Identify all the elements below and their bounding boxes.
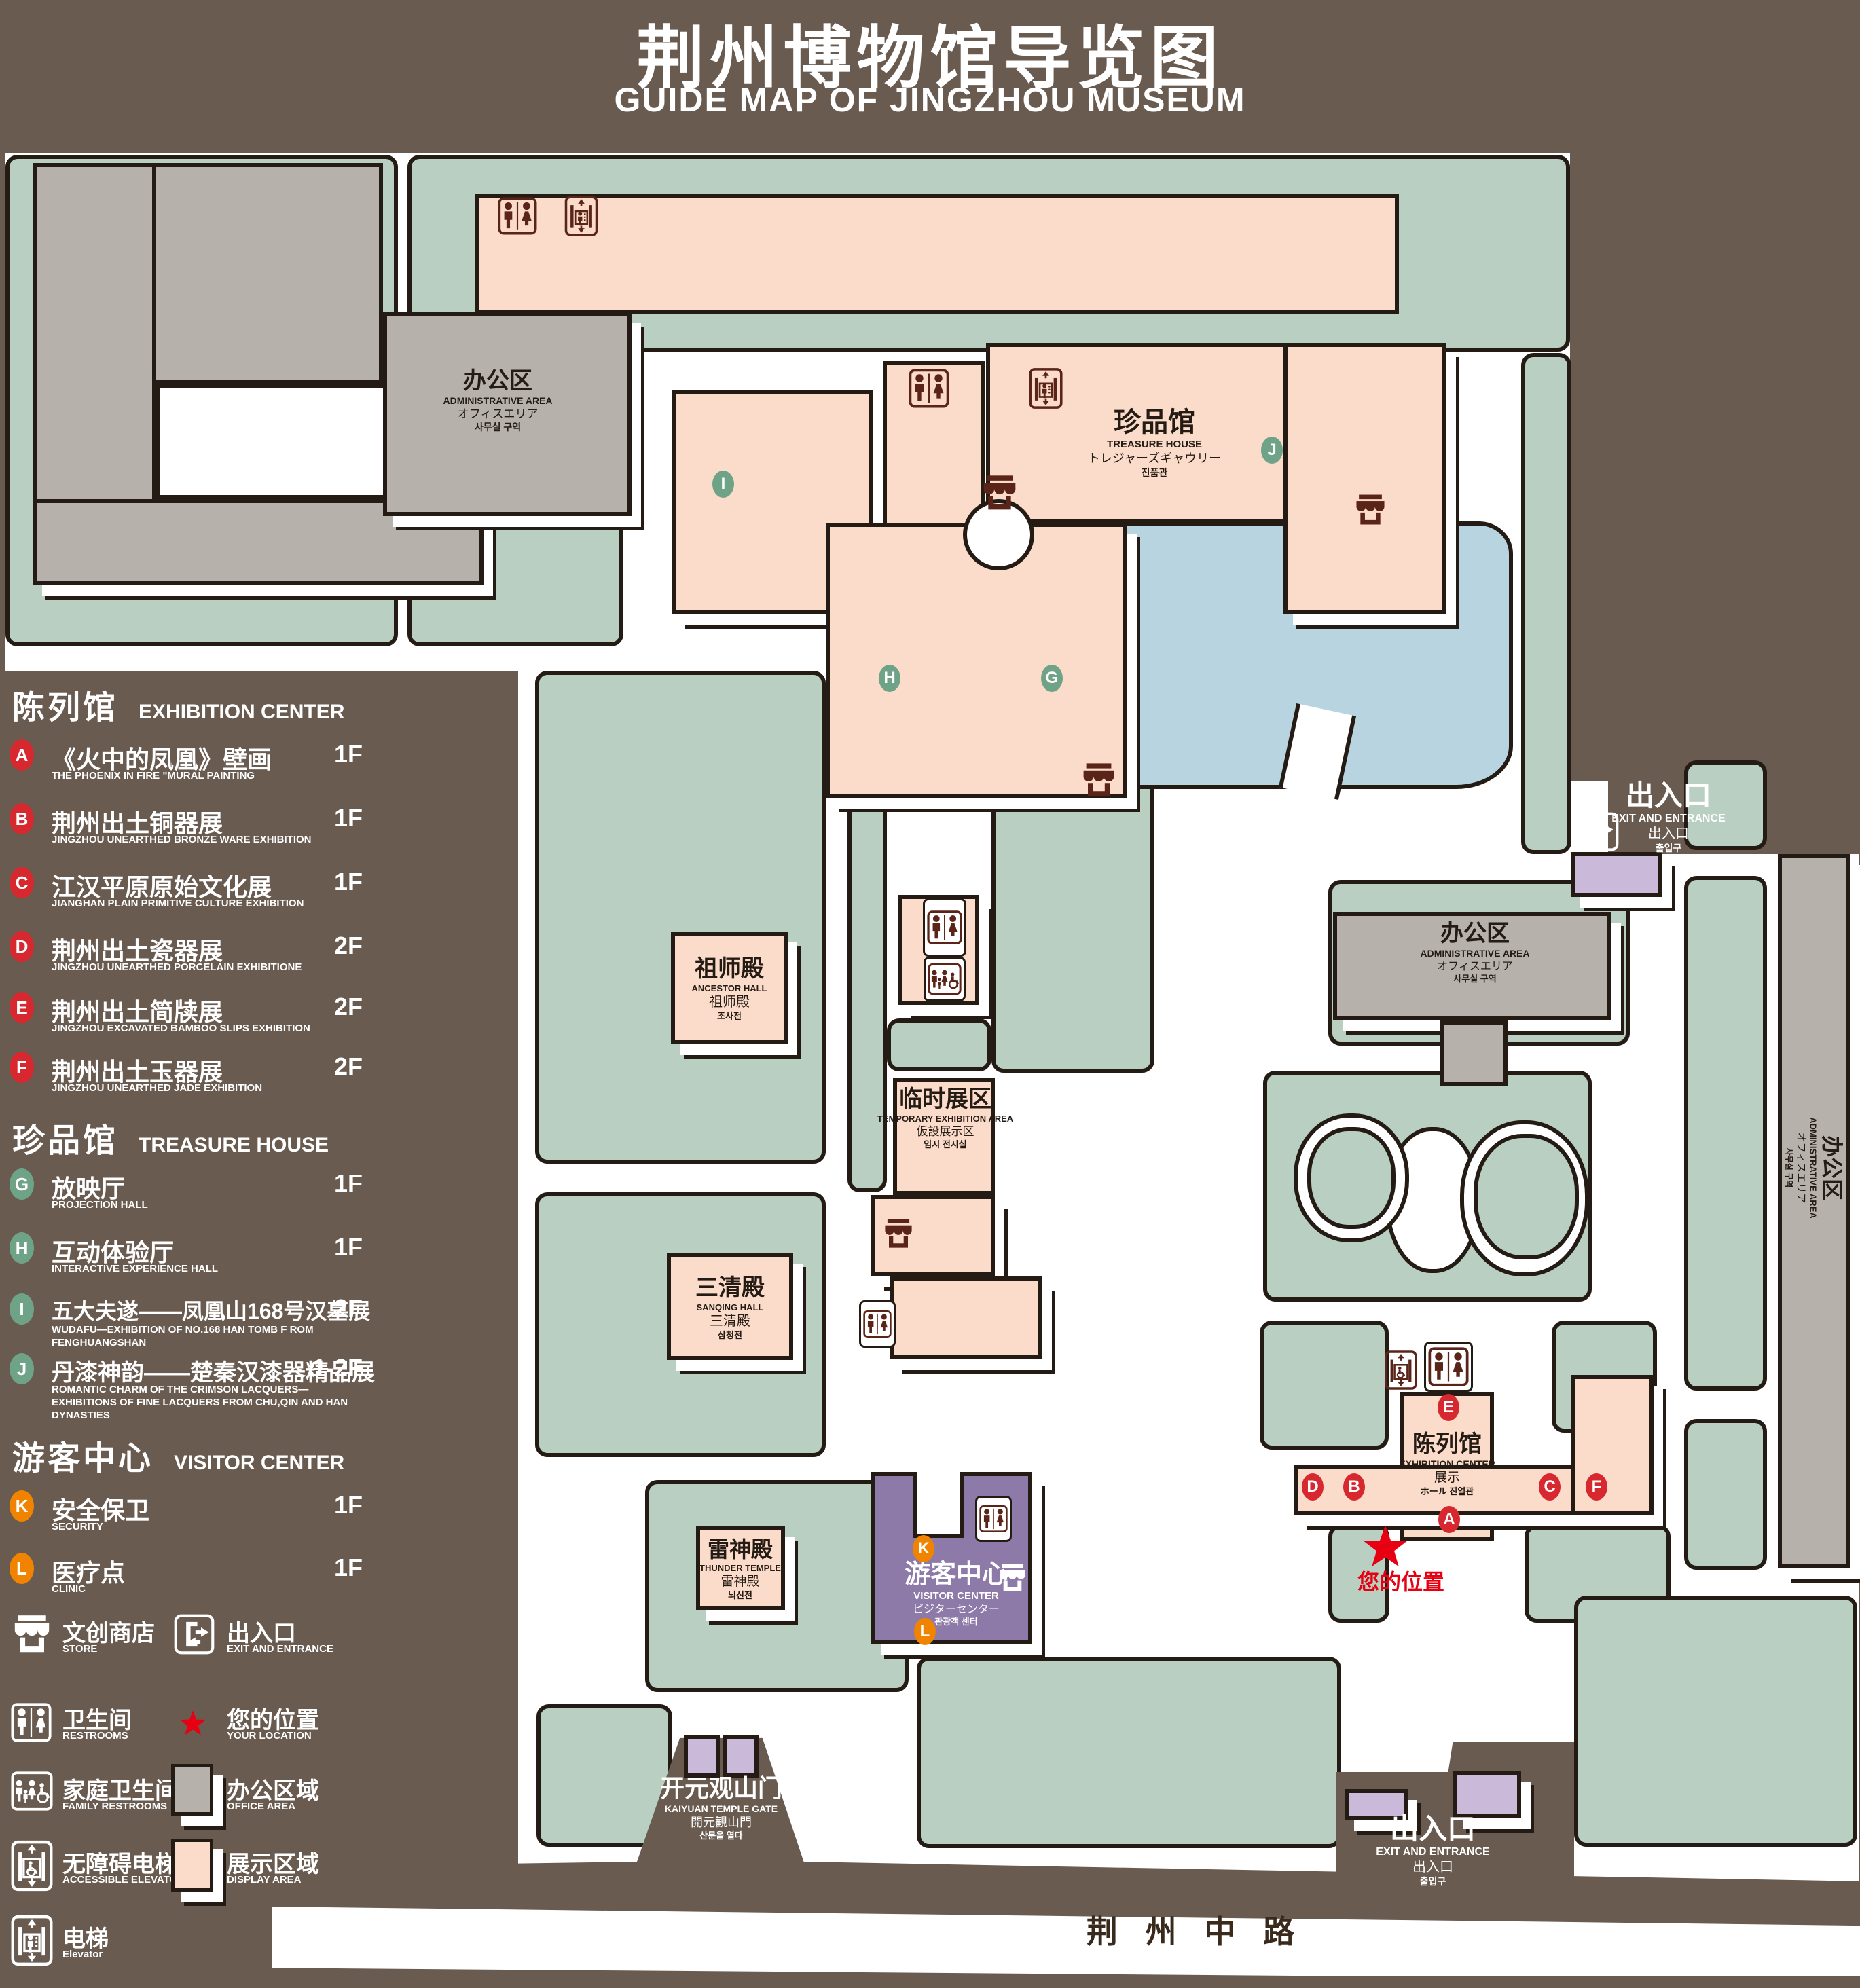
legend-item-name-en: JINGZHOU UNEARTHED JADE EXHIBITION — [52, 1082, 371, 1095]
legend-badge-b: B — [10, 803, 34, 834]
label-line: TEMPORARY EXHIBITION AREA — [877, 1114, 1013, 1124]
map-badge-g: G — [1041, 665, 1063, 692]
legend-badge-e: E — [10, 992, 34, 1023]
family-restroom-icon — [924, 957, 966, 1001]
label-line: 雷神殿 — [699, 1538, 781, 1562]
legend-item-floor: 1F — [334, 1491, 363, 1520]
legend-section-title-zh: 游客中心 — [12, 1441, 153, 1477]
temporary-exhibition-label: 临时展区TEMPORARY EXHIBITION AREA仮設展示区임시 전시실 — [877, 1085, 1013, 1152]
legend-badge-a: A — [10, 739, 34, 771]
legend-section-title-en: TREASURE HOUSE — [139, 1134, 329, 1156]
legend-item-name-en: SECURITY — [52, 1521, 371, 1534]
label-line: 展示 — [1399, 1471, 1495, 1486]
label-line: 사무실 구역 — [1785, 1117, 1793, 1219]
legend-item-name-en: PROJECTION HALL — [52, 1199, 371, 1212]
label-line: 산문을 열다 — [660, 1831, 782, 1841]
label-line: 開元観山門 — [660, 1816, 782, 1829]
legend-section-header: 陈列馆EXHIBITION CENTER — [12, 680, 344, 728]
legend-item-floor: 1F — [334, 740, 363, 769]
legend-section-header: 珍品馆TREASURE HOUSE — [12, 1113, 329, 1161]
legend-badge-c: C — [10, 867, 34, 898]
label-line: EXIT AND ENTRANCE — [1611, 813, 1725, 824]
legend-symbol-name-en: Elevator — [62, 1949, 103, 1960]
label-line: 사무실 구역 — [1421, 974, 1530, 984]
legend-item-floor: 2F — [334, 932, 363, 960]
kaiyuan-gate-label: 开元观山门KAIYUAN TEMPLE GATE開元観山門산문을 열다 — [660, 1773, 782, 1843]
label-line: 荆 州 中 路 — [1087, 1915, 1304, 1949]
label-line: ADMINISTRATIVE AREA — [1808, 1117, 1818, 1219]
legend-item-name-en: JINGZHOU EXCAVATED BAMBOO SLIPS EXHIBITI… — [52, 1023, 371, 1035]
legend-item-floor: 2F — [334, 1052, 363, 1081]
legend-item-name-en: CLINIC — [52, 1583, 371, 1596]
restroom-icon — [859, 1300, 896, 1348]
legend-item-floor: 2F — [334, 1294, 363, 1323]
label-line: 三清殿 — [695, 1314, 765, 1329]
exit-icon — [1580, 812, 1619, 851]
label-line: SANQING HALL — [695, 1303, 765, 1312]
green-area — [1684, 876, 1767, 1391]
building-small-purple — [1571, 852, 1662, 897]
label-line: ビジターセンター — [905, 1604, 1008, 1615]
label-line: 진품관 — [1088, 468, 1221, 478]
store-icon — [983, 475, 1017, 513]
legend-item-floor: 1F — [334, 1553, 363, 1582]
green-area — [917, 1657, 1341, 1848]
legend-badge-l: L — [10, 1553, 34, 1584]
elevator-icon — [11, 1912, 53, 1969]
label-line: 您的位置 — [1357, 1570, 1444, 1594]
exit-entrance-bottom-label: 出入口EXIT AND ENTRANCE出入口출입구 — [1376, 1811, 1489, 1889]
map-badge-l: L — [914, 1618, 936, 1645]
store-icon — [999, 1562, 1026, 1595]
legend-section-title-en: VISITOR CENTER — [174, 1452, 344, 1474]
accessible-elevator-icon — [11, 1837, 53, 1894]
legend-section-header: 游客中心VISITOR CENTER — [12, 1431, 344, 1479]
label-line: 出入口 — [1611, 827, 1725, 842]
label-line: 三清殿 — [695, 1276, 765, 1301]
legend-item-name-en: JIANGHAN PLAIN PRIMITIVE CULTURE EXHIBIT… — [52, 898, 371, 910]
map-badge-j: J — [1261, 437, 1283, 464]
label-line: 祖师殿 — [692, 957, 767, 982]
star-icon — [1363, 1525, 1408, 1568]
legend-item-name-en: JINGZHOU UNEARTHED PORCELAIN EXHIBITIONE — [52, 961, 371, 974]
legend-section-title-en: EXHIBITION CENTER — [139, 701, 344, 723]
legend-badge-d: D — [10, 931, 34, 962]
your-location-label: 您的位置 — [1357, 1568, 1444, 1596]
legend-item-name-en: THE PHOENIX IN FIRE "MURAL PAINTING — [52, 770, 371, 783]
label-line: 出入口 — [1376, 1814, 1489, 1844]
green-area — [535, 671, 826, 1164]
map-badge-i: I — [712, 471, 734, 498]
legend-symbol-name-en: YOUR LOCATION — [227, 1730, 312, 1742]
label-line: ADMINISTRATIVE AREA — [1421, 949, 1530, 959]
accessible-elevator-icon — [1385, 1349, 1417, 1391]
legend-section-title-zh: 陈列馆 — [12, 690, 118, 726]
map-badge-c: C — [1539, 1473, 1561, 1501]
label-line: 珍品馆 — [1088, 408, 1221, 437]
label-line: 祖师殿 — [692, 995, 767, 1010]
legend-symbol-name-en: ACCESSIBLE ELEVATOR — [62, 1874, 185, 1885]
label-line: 출입구 — [1376, 1877, 1489, 1887]
map-badge-h: H — [879, 665, 900, 692]
legend-item-floor: 1-2F — [312, 1354, 363, 1382]
legend-badge-i: I — [10, 1293, 34, 1325]
legend-item-floor: 2F — [334, 993, 363, 1021]
label-line: 办公区 — [1421, 921, 1530, 946]
legend-item-name-en: ROMANTIC CHARM OF THE CRIMSON LACQUERS—E… — [52, 1384, 371, 1422]
building-exhibition-center — [1571, 1375, 1654, 1515]
store-icon — [1082, 762, 1115, 800]
label-line: KAIYUAN TEMPLE GATE — [660, 1804, 782, 1814]
map-legend: 陈列馆EXHIBITION CENTERA《火中的凤凰》壁画THE PHOENI… — [0, 0, 516, 1988]
legend-badge-j: J — [10, 1353, 34, 1384]
legend-item-name-zh: 五大夫遂——凤凰山168号汉墓展 — [52, 1294, 370, 1325]
sanqing-hall-label: 三清殿SANQING HALL三清殿삼청전 — [695, 1274, 765, 1342]
restroom-icon — [908, 369, 950, 408]
label-line: 임시 전시실 — [877, 1140, 1013, 1149]
legend-symbol-name-en: EXIT AND ENTRANCE — [227, 1643, 333, 1655]
legend-item-floor: 1F — [334, 1169, 363, 1198]
label-line: 游客中心 — [905, 1561, 1008, 1589]
label-line: 仮設展示区 — [877, 1126, 1013, 1138]
ancestor-hall-label: 祖师殿ANCESTOR HALL祖师殿조사전 — [692, 955, 767, 1023]
admin-area-strip-label: 办公区ADMINISTRATIVE AREAオフィスエリア사무실 구역 — [1783, 1117, 1846, 1219]
map-badge-d: D — [1302, 1473, 1324, 1501]
restroom-icon — [923, 898, 966, 957]
legend-badge-f: F — [10, 1052, 34, 1083]
restroom-icon — [975, 1496, 1012, 1542]
label-line: トレジャーズギャウリー — [1088, 452, 1221, 465]
building-treasure-house — [1283, 343, 1446, 614]
label-line: オフィスエリア — [1421, 961, 1530, 972]
display-swatch — [171, 1839, 213, 1892]
map-badge-b: B — [1343, 1473, 1365, 1501]
green-area — [1260, 1321, 1389, 1450]
legend-item-floor: 1F — [334, 804, 363, 832]
label-line: EXHIBITION CENTER — [1399, 1459, 1495, 1469]
legend-item-floor: 1F — [334, 1233, 363, 1262]
label-line: 뇌신전 — [699, 1591, 781, 1600]
map-badge-f: F — [1586, 1473, 1607, 1501]
thunder-temple-label: 雷神殿THUNDER TEMPLE雷神殿뇌신전 — [699, 1536, 781, 1602]
legend-symbol-name-en: STORE — [62, 1643, 97, 1655]
label-line: THUNDER TEMPLE — [699, 1564, 781, 1573]
label-line: TREASURE HOUSE — [1088, 439, 1221, 450]
building-treasure-house — [475, 194, 1399, 314]
building-temporary-exhibition — [890, 1276, 1042, 1359]
map-badge-e: E — [1438, 1394, 1459, 1421]
label-line: 삼청전 — [695, 1331, 765, 1340]
legend-symbol-name-en: RESTROOMS — [62, 1730, 128, 1742]
label-line: 조사전 — [692, 1012, 767, 1021]
store-icon — [1355, 492, 1385, 529]
office-swatch — [171, 1764, 213, 1816]
legend-item-name-en: JINGZHOU UNEARTHED BRONZE WARE EXHIBITIO… — [52, 834, 371, 847]
legend-item-name-en: INTERACTIVE EXPERIENCE HALL — [52, 1263, 371, 1276]
garden-island — [1474, 1134, 1579, 1259]
gate-pillar — [684, 1735, 720, 1778]
visitor-center-notch — [913, 1472, 964, 1538]
gate-pillar — [723, 1735, 759, 1778]
label-line: 出入口 — [1611, 780, 1725, 811]
label-line: 开元观山门 — [660, 1775, 782, 1802]
legend-symbol-name-en: FAMILY RESTROOMS — [62, 1801, 167, 1812]
guide-map-page: 荆州博物馆导览图 GUIDE MAP OF JINGZHOU MUSEUM 办公… — [0, 0, 1860, 1988]
label-line: EXIT AND ENTRANCE — [1376, 1846, 1489, 1858]
elevator-icon — [564, 196, 598, 236]
label-line: VISITOR CENTER — [905, 1591, 1008, 1602]
treasure-house-label: 珍品馆TREASURE HOUSEトレジャーズギャウリー진품관 — [1088, 406, 1221, 480]
star-icon — [179, 1710, 206, 1737]
green-area — [1574, 1596, 1857, 1847]
map-badge-a: A — [1438, 1506, 1460, 1533]
admin-area-right-label: 办公区ADMINISTRATIVE AREAオフィスエリア사무실 구역 — [1421, 919, 1530, 986]
road-label: 荆 州 中 路 — [1087, 1913, 1304, 1951]
legend-symbol-name-en: DISPLAY AREA — [227, 1874, 301, 1885]
label-line: 출입구 — [1611, 843, 1725, 853]
legend-badge-g: G — [10, 1168, 34, 1200]
restroom-icon — [11, 1696, 52, 1749]
label-line: オフィスエリア — [1795, 1117, 1806, 1219]
building-treasure-house-wing — [826, 523, 1127, 798]
legend-item-floor: 1F — [334, 868, 363, 896]
label-line: ホール 진열관 — [1399, 1487, 1495, 1496]
map-badge-k: K — [913, 1535, 934, 1562]
restroom-icon — [1424, 1342, 1473, 1392]
store-icon — [14, 1612, 50, 1658]
garden-island — [1307, 1127, 1396, 1229]
label-line: 办公区 — [1820, 1117, 1844, 1219]
building-admin-right — [1440, 1020, 1508, 1086]
legend-section-title-zh: 珍品馆 — [12, 1123, 118, 1159]
legend-symbol-name-en: OFFICE AREA — [227, 1801, 295, 1812]
label-line: ANCESTOR HALL — [692, 984, 767, 993]
legend-badge-k: K — [10, 1490, 34, 1522]
exit-icon — [174, 1610, 215, 1658]
exhibition-center-label: 陈列馆EXHIBITION CENTER展示ホール 진열관 — [1399, 1430, 1495, 1498]
family-restroom-icon — [11, 1764, 53, 1818]
green-area — [887, 1018, 991, 1071]
green-area — [1684, 1419, 1767, 1570]
exit-entrance-topright-label: 出入口EXIT AND ENTRANCE出入口출입구 — [1611, 778, 1725, 855]
label-line: 出入口 — [1376, 1860, 1489, 1875]
label-line: 陈列馆 — [1399, 1432, 1495, 1457]
elevator-icon — [1029, 367, 1063, 409]
label-line: 临时展区 — [877, 1087, 1013, 1112]
legend-badge-h: H — [10, 1232, 34, 1264]
legend-item-name-en: WUDAFU—EXHIBITION OF NO.168 HAN TOMB F R… — [52, 1324, 371, 1350]
label-line: 雷神殿 — [699, 1575, 781, 1589]
green-area — [1521, 353, 1571, 854]
store-icon — [884, 1215, 913, 1254]
